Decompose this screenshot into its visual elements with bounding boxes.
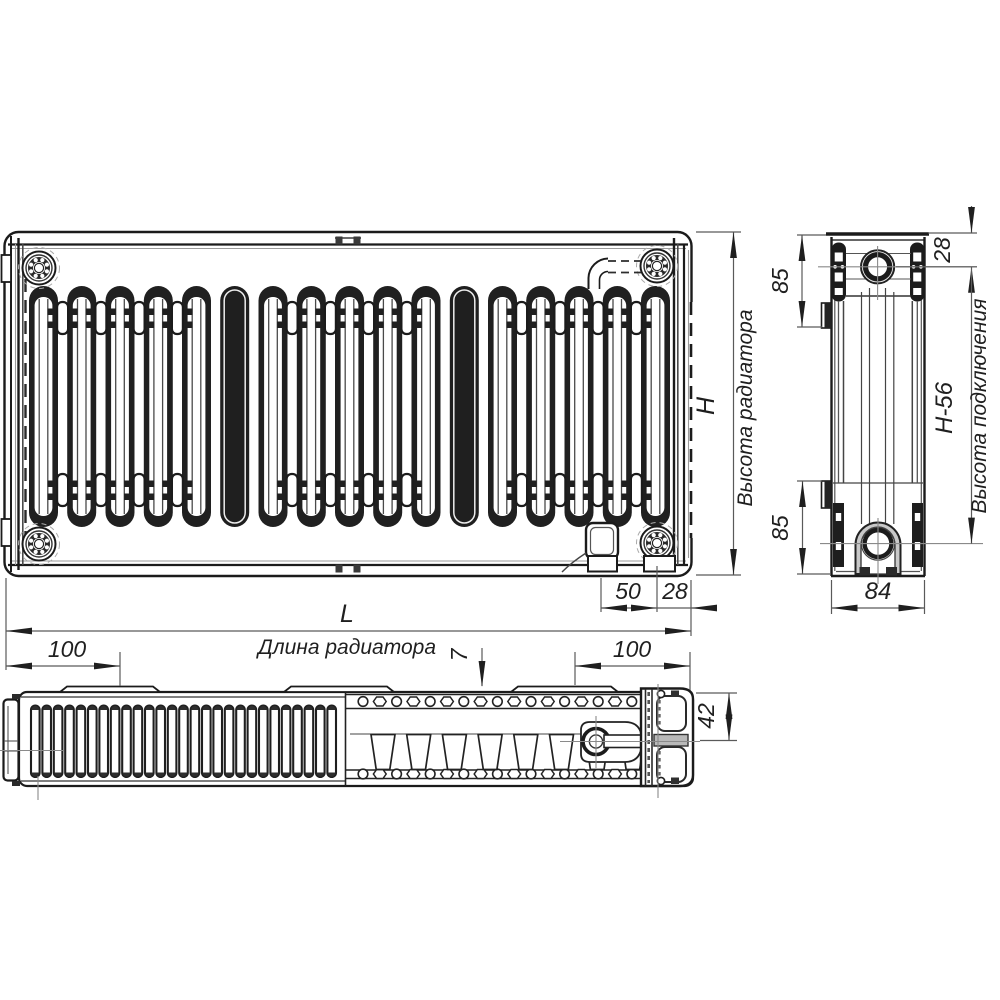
svg-text:Высота радиатора: Высота радиатора: [734, 309, 757, 506]
svg-text:100: 100: [613, 636, 652, 662]
svg-text:50: 50: [615, 578, 641, 604]
svg-text:H: H: [692, 396, 720, 415]
svg-text:28: 28: [661, 578, 688, 604]
svg-text:7: 7: [446, 647, 472, 661]
svg-text:Длина радиатора: Длина радиатора: [256, 636, 436, 659]
svg-text:100: 100: [48, 636, 87, 662]
svg-text:L: L: [340, 600, 354, 628]
svg-text:H-56: H-56: [931, 381, 958, 434]
svg-text:Высота подключения: Высота подключения: [968, 299, 991, 514]
svg-text:28: 28: [929, 237, 955, 264]
svg-text:85: 85: [767, 268, 793, 294]
svg-text:42: 42: [693, 703, 719, 729]
svg-text:85: 85: [767, 515, 793, 541]
svg-text:84: 84: [865, 578, 892, 605]
